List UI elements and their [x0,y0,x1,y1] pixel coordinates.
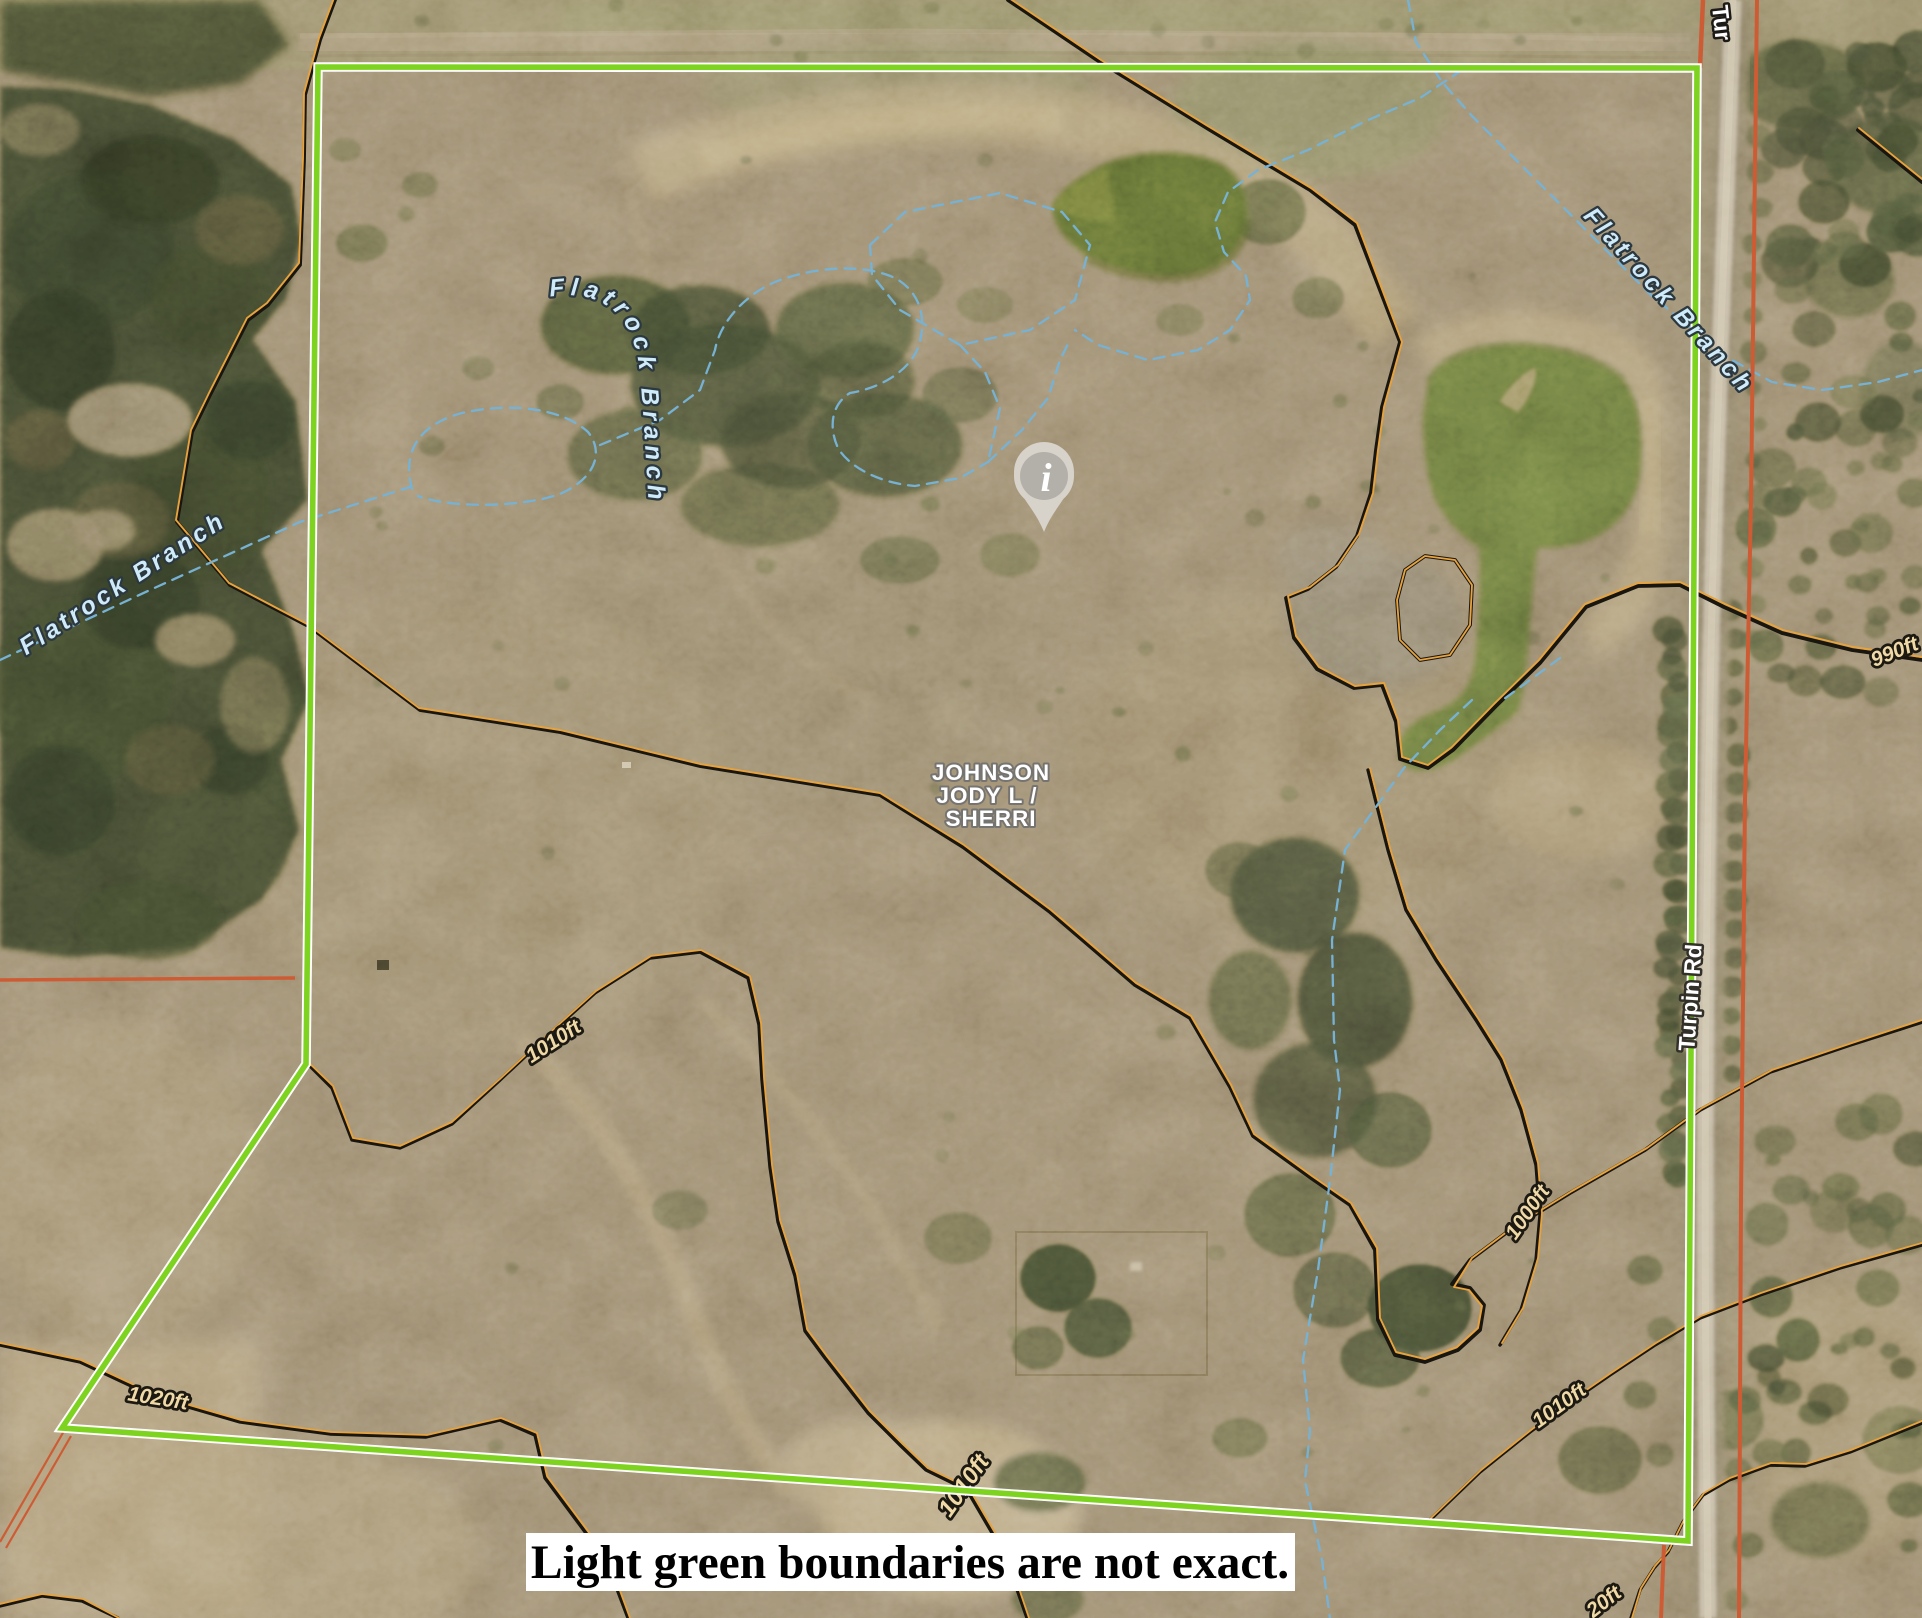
svg-text:JODY L /: JODY L / [937,783,1038,808]
svg-text:i: i [1040,455,1051,500]
svg-text:JOHNSON: JOHNSON [932,760,1050,785]
svg-text:Light green boundaries are not: Light green boundaries are not exact. [531,1537,1289,1589]
svg-text:Tur: Tur [1707,4,1737,42]
svg-text:SHERRI: SHERRI [945,806,1036,831]
